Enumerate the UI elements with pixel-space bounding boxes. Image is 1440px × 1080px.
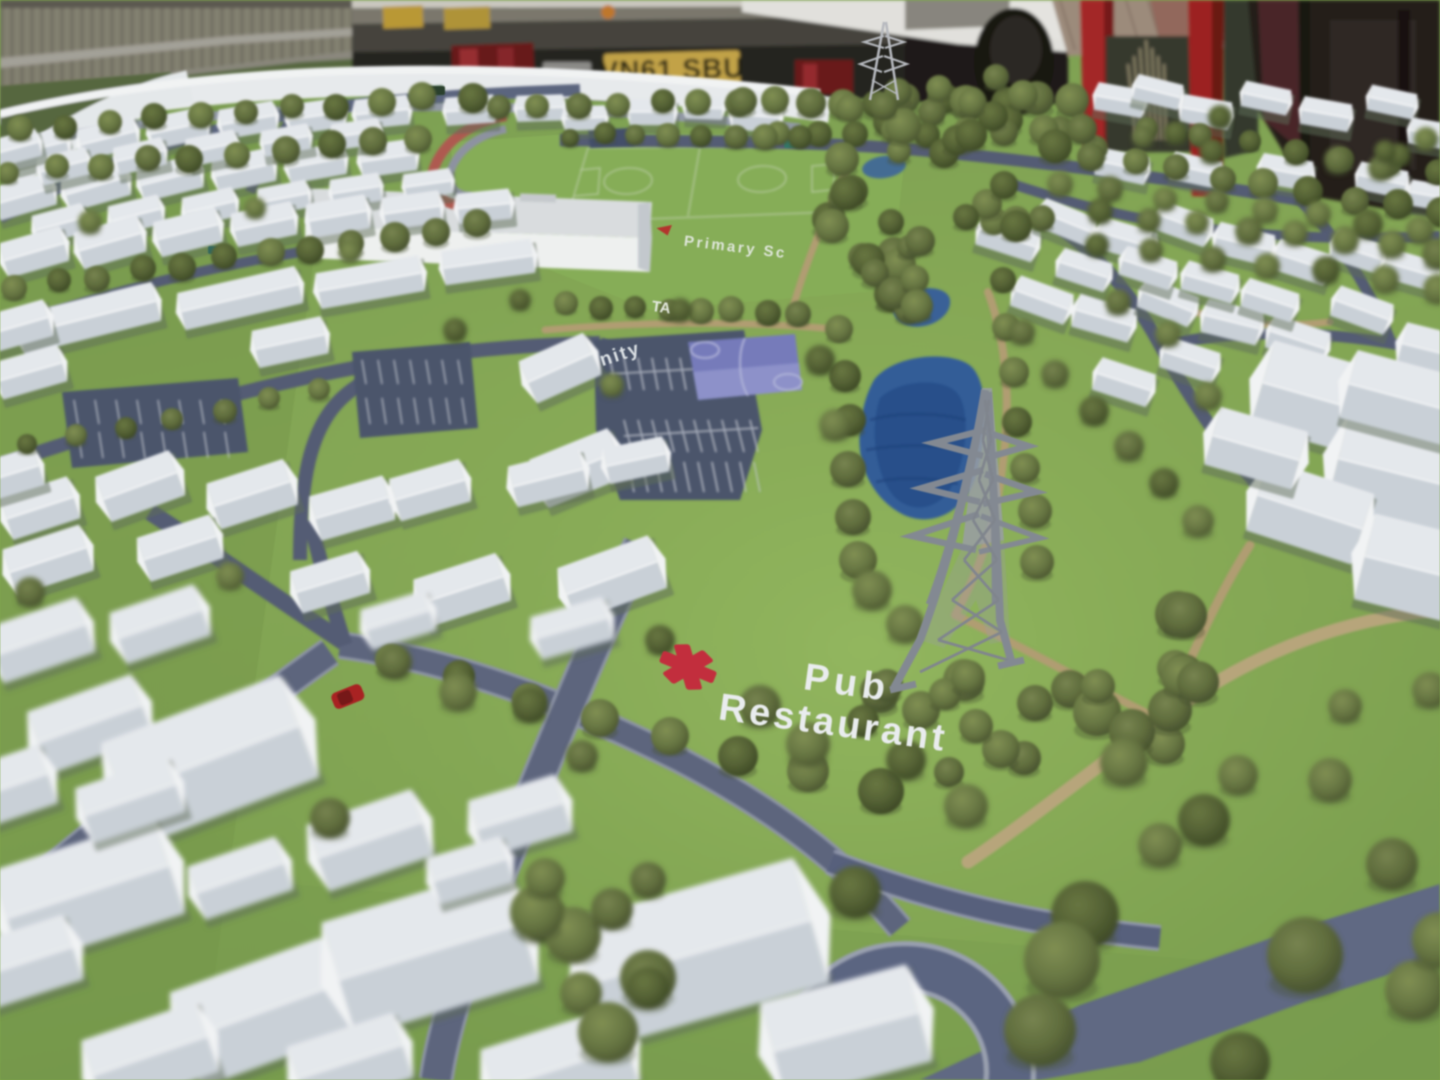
svg-text:TA: TA xyxy=(651,298,672,317)
